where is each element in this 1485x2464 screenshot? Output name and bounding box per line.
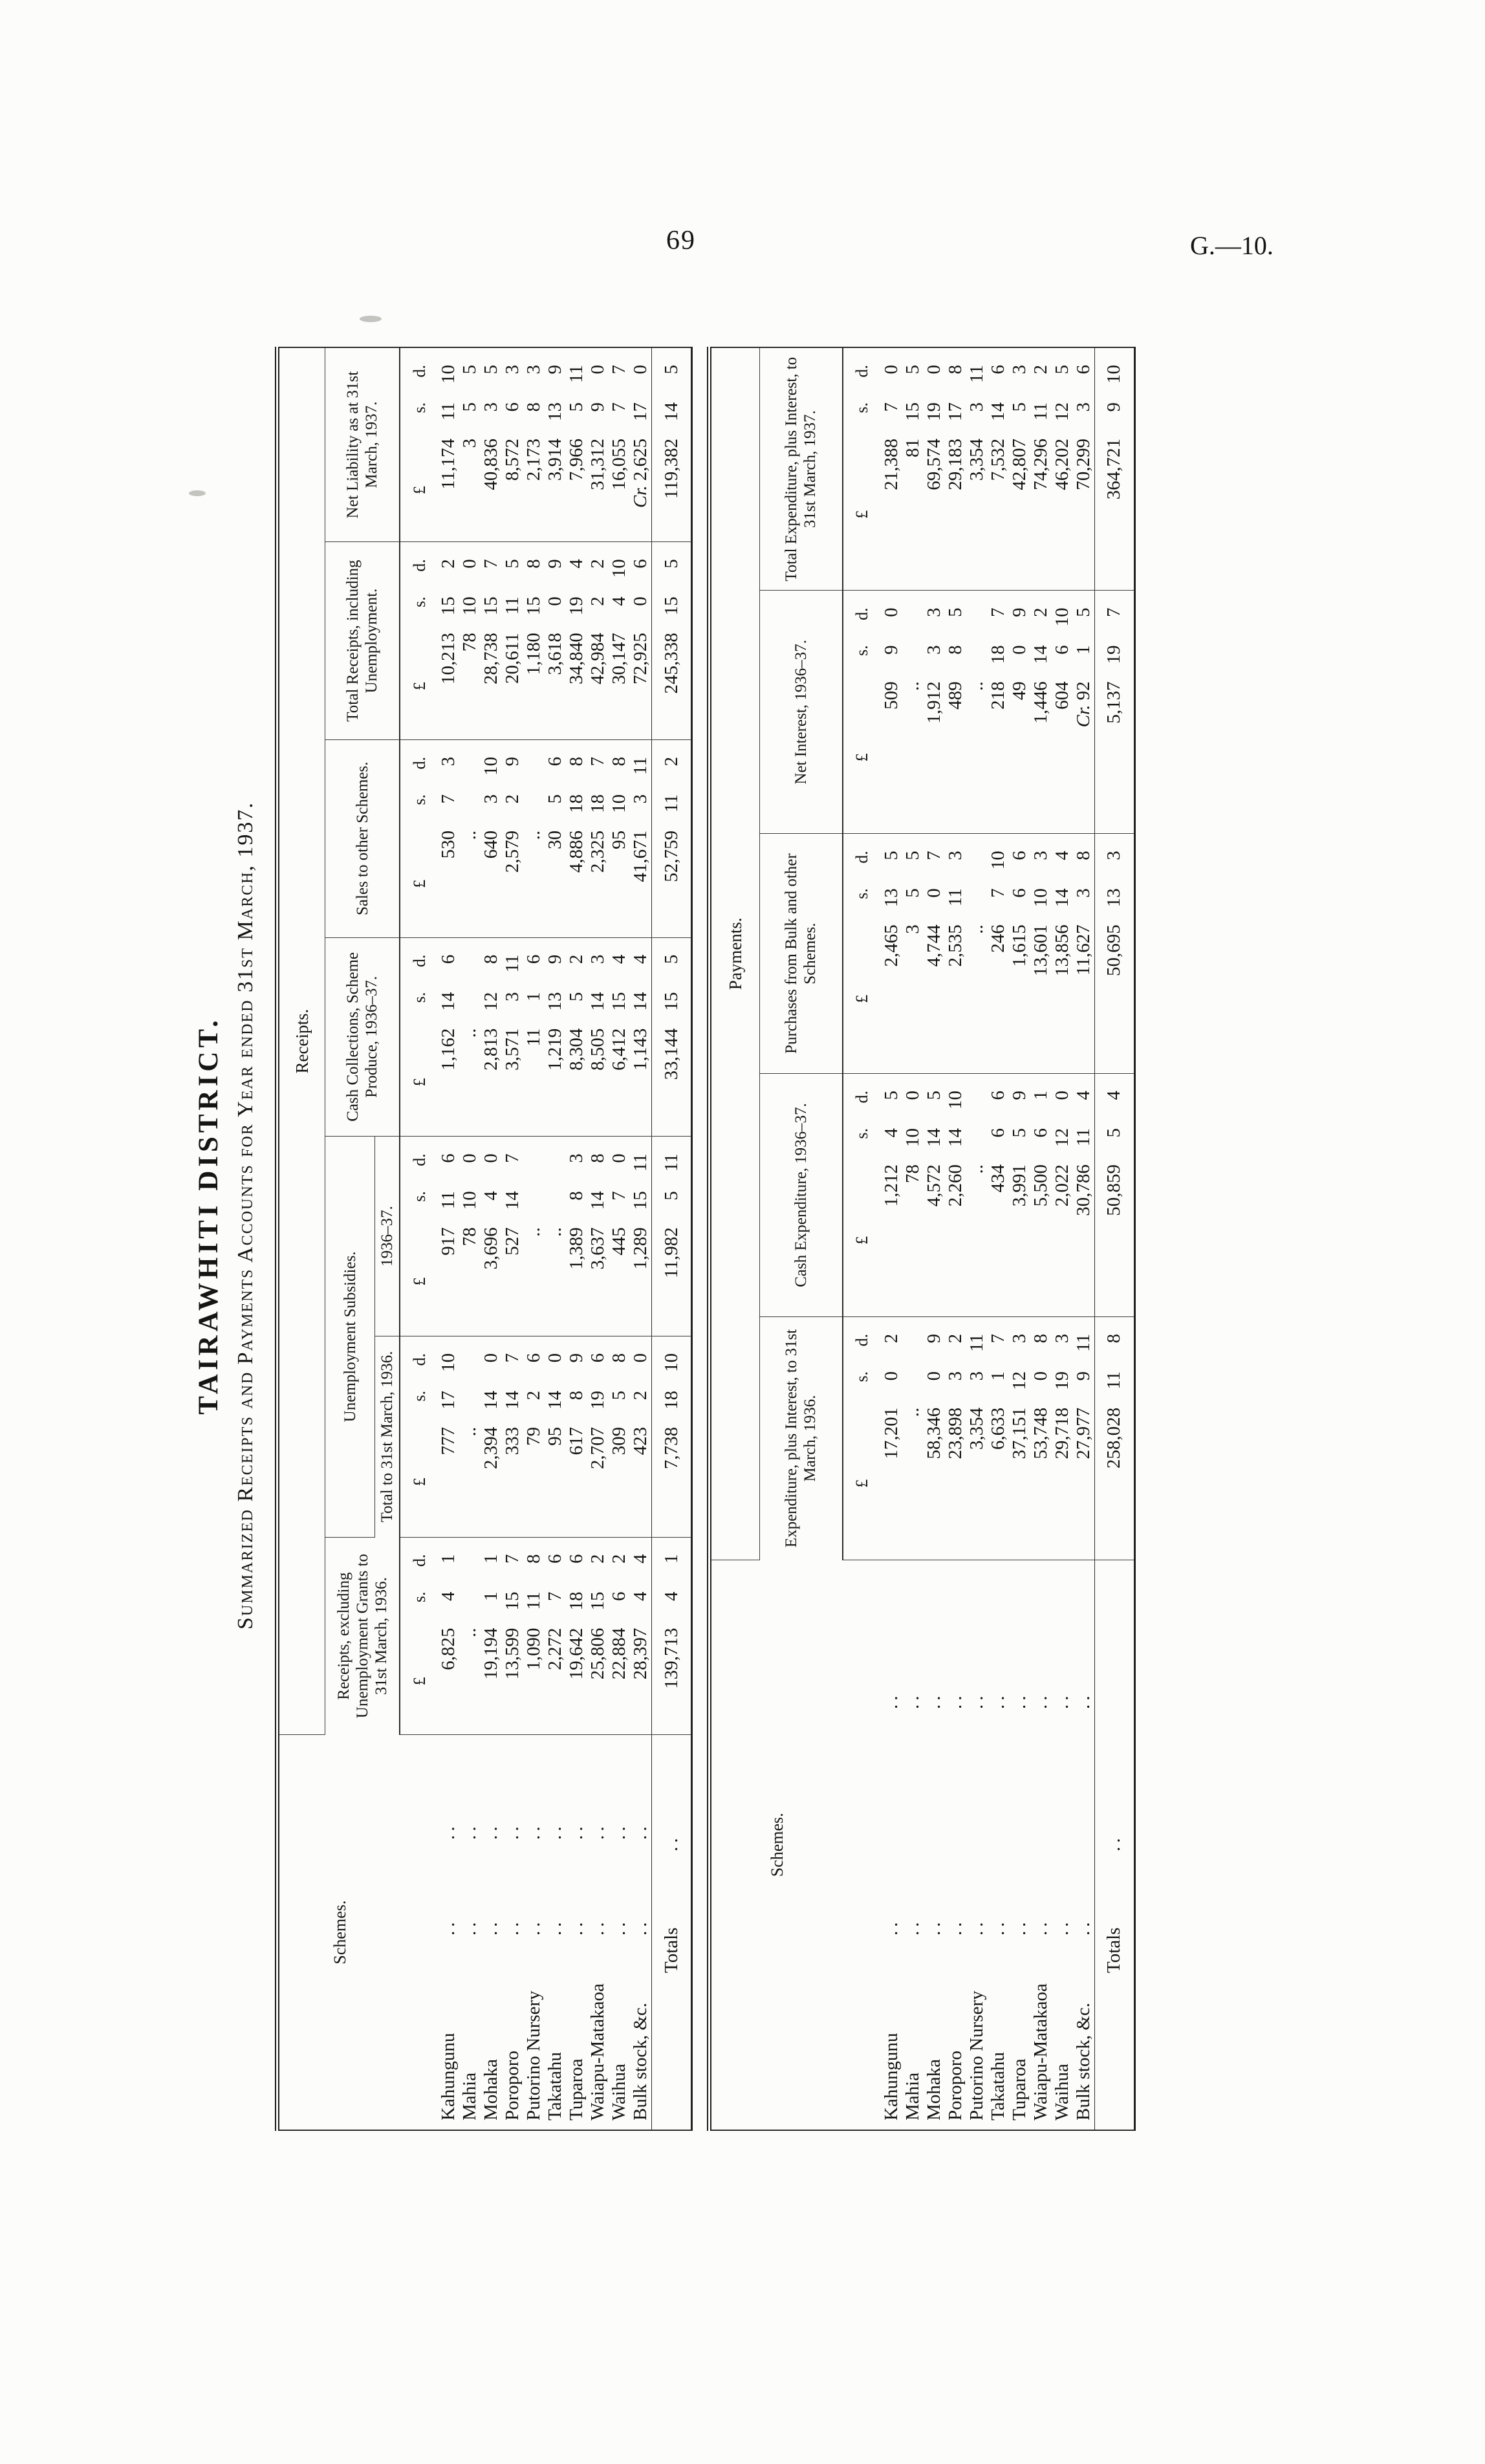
money-cell: 4909 bbox=[1009, 591, 1030, 834]
money-cell: 4,572145 bbox=[924, 1074, 945, 1317]
table-row: Mohaka....19,194112,3941403,696402,81312… bbox=[481, 347, 502, 2130]
column-header: Total Expenditure, plus Interest, to 31s… bbox=[760, 347, 843, 591]
scheme-cell: Takatahu.... bbox=[988, 1560, 1009, 2130]
money-cell: 70,29936 bbox=[1073, 347, 1095, 591]
scheme-cell: Waihua.... bbox=[1052, 1560, 1073, 2130]
money-cell: 25,806152 bbox=[587, 1537, 609, 1735]
table-row: Waihua....29,7181932,02212013,8561446046… bbox=[1052, 347, 1073, 2130]
money-cell: 7,532146 bbox=[988, 347, 1009, 591]
money-cell: .. bbox=[966, 1074, 988, 1317]
table-row: Mahia........78100....78100355 bbox=[459, 347, 481, 2130]
table-row: Takatahu....2,2727695140..1,21913930563,… bbox=[545, 347, 566, 2130]
scheme-cell: Putorino Nursery.... bbox=[523, 1735, 545, 2130]
money-cell: Cr. 9215 bbox=[1073, 591, 1095, 834]
money-cell: 5,50061 bbox=[1030, 1074, 1052, 1317]
money-cell: 1,219139 bbox=[545, 937, 566, 1137]
money-cell: 42320 bbox=[630, 1336, 652, 1537]
money-cell: 22,88462 bbox=[609, 1537, 630, 1735]
money-cell: 1,143144 bbox=[630, 937, 652, 1137]
money-cell: 1,91233 bbox=[924, 591, 945, 834]
money-cell: 13,599157 bbox=[502, 1537, 523, 1735]
money-cell: 1,2891511 bbox=[630, 1137, 652, 1336]
schemes-header: Schemes. bbox=[277, 1735, 400, 2130]
table-row: Mohaka....58,346094,5721454,744071,91233… bbox=[924, 347, 945, 2130]
money-unit: £s.d. bbox=[400, 1336, 438, 1537]
money-cell: 42,80753 bbox=[1009, 347, 1030, 591]
money-cell: 245,338155 bbox=[652, 542, 692, 740]
money-cell: 1,21245 bbox=[881, 1074, 902, 1317]
money-cell: 6,412154 bbox=[609, 937, 630, 1137]
table-row: Bulk stock, &c.....28,39744423201,289151… bbox=[630, 347, 652, 2130]
column-header: Expenditure, plus Interest, to 31st Marc… bbox=[760, 1316, 843, 1560]
money-cell: 16,05577 bbox=[609, 347, 630, 542]
money-cell: 7,7381810 bbox=[652, 1336, 692, 1537]
money-cell: 30,786114 bbox=[1073, 1074, 1095, 1317]
money-cell: 53,74808 bbox=[1030, 1316, 1052, 1560]
money-unit: £s.d. bbox=[843, 591, 881, 834]
money-cell: 11,982511 bbox=[652, 1137, 692, 1336]
money-cell: 95108 bbox=[609, 739, 630, 937]
money-cell: 3,571311 bbox=[502, 937, 523, 1137]
money-cell: 2,325187 bbox=[587, 739, 609, 937]
money-cell: 2,2601410 bbox=[945, 1074, 966, 1317]
table-row: Kahungunu....6,8254177717109171161,16214… bbox=[438, 347, 459, 2130]
money-cell: 3,354311 bbox=[966, 347, 988, 591]
money-cell: .. bbox=[523, 739, 545, 937]
money-cell: 355 bbox=[459, 347, 481, 542]
money-cell: 4,74407 bbox=[924, 834, 945, 1074]
scheme-cell bbox=[400, 1735, 438, 2130]
money-cell: 3056 bbox=[545, 739, 566, 937]
money-cell: 3,914139 bbox=[545, 347, 566, 542]
money-cell: 119,382145 bbox=[652, 347, 692, 542]
money-cell: 4,886188 bbox=[566, 739, 587, 937]
doc-ref: G.—10. bbox=[1190, 230, 1274, 261]
money-cell: 640310 bbox=[481, 739, 502, 937]
district-title: TAIRAWHITI DISTRICT. bbox=[193, 274, 224, 2157]
money-unit: £s.d. bbox=[400, 1137, 438, 1336]
section-label-receipts: Receipts. bbox=[277, 347, 325, 1735]
money-cell: 19,642186 bbox=[566, 1537, 587, 1735]
money-cell: 6,63317 bbox=[988, 1316, 1009, 1560]
money-cell: 78100 bbox=[902, 1074, 924, 1317]
money-cell: 29,183178 bbox=[945, 347, 966, 591]
money-cell: 2,535113 bbox=[945, 834, 966, 1074]
money-unit: £s.d. bbox=[400, 542, 438, 740]
money-cell: 21,38870 bbox=[881, 347, 902, 591]
money-cell: 604610 bbox=[1052, 591, 1073, 834]
table-row: Putorino Nursery....1,0901187926..1116..… bbox=[523, 347, 545, 2130]
payments-table: Schemes. Payments. Expenditure, plus Int… bbox=[707, 347, 1136, 2131]
money-cell: .. bbox=[459, 739, 481, 937]
table-row: Waihua....22,8846230958445706,4121549510… bbox=[609, 347, 630, 2130]
money-cell: 333147 bbox=[502, 1336, 523, 1537]
money-cell: 74,296112 bbox=[1030, 347, 1052, 591]
money-cell: 40,83635 bbox=[481, 347, 502, 542]
money-cell: 50990 bbox=[881, 591, 902, 834]
money-cell: 61789 bbox=[566, 1336, 587, 1537]
money-cell: .. bbox=[966, 834, 988, 1074]
money-cell: 78100 bbox=[459, 542, 481, 740]
money-cell: 1,180158 bbox=[523, 542, 545, 740]
money-cell: 58,34609 bbox=[924, 1316, 945, 1560]
money-cell: 1,162146 bbox=[438, 937, 459, 1137]
table-row: Tuparoa....19,642186617891,389838,304524… bbox=[566, 347, 587, 2130]
money-cell: 95140 bbox=[545, 1336, 566, 1537]
money-cell: 7,966511 bbox=[566, 347, 587, 542]
money-cell: .. bbox=[902, 1316, 924, 1560]
table-row: Kahungunu....17,201021,212452,4651355099… bbox=[881, 347, 902, 2130]
money-cell: 1,090118 bbox=[523, 1537, 545, 1735]
money-cell: 30,147410 bbox=[609, 542, 630, 740]
money-cell: 139,71341 bbox=[652, 1537, 692, 1735]
scheme-cell: Totals.... bbox=[652, 1735, 692, 2130]
scheme-cell: Bulk stock, &c..... bbox=[630, 1735, 652, 2130]
schemes-header: Schemes. bbox=[710, 1560, 843, 2130]
money-cell: 31,31290 bbox=[587, 347, 609, 542]
money-unit: £s.d. bbox=[400, 739, 438, 937]
money-cell: 6,82541 bbox=[438, 1537, 459, 1735]
money-cell: 33,144155 bbox=[652, 937, 692, 1137]
scheme-cell: Waiapu-Matakaoa.... bbox=[1030, 1560, 1052, 2130]
money-cell: 50,85954 bbox=[1094, 1074, 1134, 1317]
money-cell: 3,99159 bbox=[1009, 1074, 1030, 1317]
money-cell: 43466 bbox=[988, 1074, 1009, 1317]
money-cell: .. bbox=[459, 1336, 481, 1537]
money-cell: 1,446142 bbox=[1030, 591, 1052, 834]
table-row: Mahia......78100355..81155 bbox=[902, 347, 924, 2130]
money-unit: £s.d. bbox=[400, 937, 438, 1137]
money-unit-row: £s.d.£s.d.£s.d.£s.d.£s.d. bbox=[843, 347, 881, 2130]
totals-row: Totals....258,02811850,8595450,6951335,1… bbox=[1094, 347, 1134, 2130]
scheme-cell: Mohaka.... bbox=[481, 1735, 502, 2130]
money-cell: 258,028118 bbox=[1094, 1316, 1134, 1560]
money-cell: 2,707196 bbox=[587, 1336, 609, 1537]
money-cell: 1,61566 bbox=[1009, 834, 1030, 1074]
money-cell: 364,721910 bbox=[1094, 347, 1134, 591]
money-cell: 2,27276 bbox=[545, 1537, 566, 1735]
table-row: Poroporo....13,5991573331475271473,57131… bbox=[502, 347, 523, 2130]
money-cell: 17,20102 bbox=[881, 1316, 902, 1560]
totals-row: Totals....139,713417,738181011,98251133,… bbox=[652, 347, 692, 2130]
money-cell: 50,695133 bbox=[1094, 834, 1134, 1074]
scheme-cell: Totals.... bbox=[1094, 1560, 1134, 2130]
section-label-payments: Payments. bbox=[710, 347, 760, 1560]
column-subheader: 1936–37. bbox=[375, 1137, 400, 1336]
money-cell: .. bbox=[459, 1537, 481, 1735]
money-cell: 11,62738 bbox=[1073, 834, 1095, 1074]
money-cell: .. bbox=[966, 591, 988, 834]
money-cell: 44570 bbox=[609, 1137, 630, 1336]
money-cell: 19,19411 bbox=[481, 1537, 502, 1735]
money-unit: £s.d. bbox=[843, 1316, 881, 1560]
money-cell: 41,671311 bbox=[630, 739, 652, 937]
money-cell: 2,57929 bbox=[502, 739, 523, 937]
money-cell: 5,137197 bbox=[1094, 591, 1134, 834]
money-cell: 42,98422 bbox=[587, 542, 609, 740]
scheme-cell: Kahungunu.... bbox=[881, 1560, 902, 2130]
money-cell: 2,17383 bbox=[523, 347, 545, 542]
money-cell: 10,213152 bbox=[438, 542, 459, 740]
money-cell: 11,1741110 bbox=[438, 347, 459, 542]
money-unit: £s.d. bbox=[843, 1074, 881, 1317]
scheme-cell: Mohaka.... bbox=[924, 1560, 945, 2130]
money-cell: Cr. 2,625170 bbox=[630, 347, 652, 542]
table-subtitle: Summarized Receipts and Payments Account… bbox=[233, 274, 258, 2157]
money-cell: 34,840194 bbox=[566, 542, 587, 740]
money-cell: 13,856144 bbox=[1052, 834, 1073, 1074]
money-cell: .. bbox=[459, 937, 481, 1137]
money-cell: 218187 bbox=[988, 591, 1009, 834]
column-header: Cash Expenditure, 1936–37. bbox=[760, 1074, 843, 1317]
table-row: Putorino Nursery....3,354311......3,3543… bbox=[966, 347, 988, 2130]
money-cell: .. bbox=[523, 1137, 545, 1336]
money-cell: 20,611115 bbox=[502, 542, 523, 740]
column-group-header: Unemployment Subsidies. bbox=[325, 1137, 375, 1537]
column-header: Total Receipts, including Unemployment. bbox=[325, 542, 400, 740]
scheme-cell: Putorino Nursery.... bbox=[966, 1560, 988, 2130]
money-cell: .. bbox=[545, 1137, 566, 1336]
scheme-cell bbox=[843, 1560, 881, 2130]
money-cell: .. bbox=[902, 591, 924, 834]
rotated-sheet: TAIRAWHITI DISTRICT. Summarized Receipts… bbox=[150, 274, 1228, 2157]
table-row: Tuparoa....37,1511233,991591,61566490942… bbox=[1009, 347, 1030, 2130]
money-cell: 8,505143 bbox=[587, 937, 609, 1137]
money-cell: 28,738157 bbox=[481, 542, 502, 740]
document-page: { "page": { "number": "69", "doc_ref": "… bbox=[0, 0, 1485, 2464]
scheme-cell: Waiapu-Matakaoa.... bbox=[587, 1735, 609, 2130]
money-cell: 52,759112 bbox=[652, 739, 692, 937]
money-cell: 2,394140 bbox=[481, 1336, 502, 1537]
column-header: Purchases from Bulk and other Schemes. bbox=[760, 834, 843, 1074]
table-row: Takatahu....6,63317434662467102181877,53… bbox=[988, 347, 1009, 2130]
money-cell: 37,151123 bbox=[1009, 1316, 1030, 1560]
money-unit: £s.d. bbox=[843, 347, 881, 591]
money-cell: 78100 bbox=[459, 1137, 481, 1336]
money-cell: 13,601103 bbox=[1030, 834, 1052, 1074]
scheme-cell: Tuparoa.... bbox=[1009, 1560, 1030, 2130]
scheme-cell: Poroporo.... bbox=[502, 1735, 523, 2130]
money-unit: £s.d. bbox=[400, 1537, 438, 1735]
money-cell: 46,202125 bbox=[1052, 347, 1073, 591]
scheme-cell: Mahia.... bbox=[459, 1735, 481, 2130]
scheme-cell: Waihua.... bbox=[609, 1735, 630, 2130]
column-subheader: Total to 31st March, 1936. bbox=[375, 1336, 400, 1537]
table-row: Poroporo....23,898322,26014102,535113489… bbox=[945, 347, 966, 2130]
column-header: Receipts, excluding Unemployment Grants … bbox=[325, 1537, 400, 1735]
money-cell: 23,89832 bbox=[945, 1316, 966, 1560]
money-cell: 917116 bbox=[438, 1137, 459, 1336]
column-header: Net Liability as at 31st March, 1937. bbox=[325, 347, 400, 542]
table-row: Waiapu-Matakaoa....53,748085,5006113,601… bbox=[1030, 347, 1052, 2130]
money-cell: 527147 bbox=[502, 1137, 523, 1336]
money-unit: £s.d. bbox=[400, 347, 438, 542]
money-cell: 7771710 bbox=[438, 1336, 459, 1537]
scheme-cell: Tuparoa.... bbox=[566, 1735, 587, 2130]
money-unit-row: £s.d.£s.d.£s.d.£s.d.£s.d.£s.d.£s.d. bbox=[400, 347, 438, 2130]
scheme-cell: Kahungunu.... bbox=[438, 1735, 459, 2130]
money-cell: 28,39744 bbox=[630, 1537, 652, 1735]
money-cell: 29,718193 bbox=[1052, 1316, 1073, 1560]
money-cell: 2,465135 bbox=[881, 834, 902, 1074]
scheme-cell: Takatahu.... bbox=[545, 1735, 566, 2130]
page-number: 69 bbox=[666, 225, 696, 256]
money-cell: 2,022120 bbox=[1052, 1074, 1073, 1317]
money-cell: 3,69640 bbox=[481, 1137, 502, 1336]
money-cell: 72,92506 bbox=[630, 542, 652, 740]
money-cell: 3,354311 bbox=[966, 1316, 988, 1560]
money-cell: 8,30452 bbox=[566, 937, 587, 1137]
money-cell: 1116 bbox=[523, 937, 545, 1137]
scheme-cell: Mahia.... bbox=[902, 1560, 924, 2130]
money-cell: 30958 bbox=[609, 1336, 630, 1537]
column-header: Net Interest, 1936–37. bbox=[760, 591, 843, 834]
table-row: Bulk stock, &c.....27,97791130,78611411,… bbox=[1073, 347, 1095, 2130]
money-cell: 81155 bbox=[902, 347, 924, 591]
column-header: Cash Collections, Scheme Produce, 1936–3… bbox=[325, 937, 400, 1137]
receipts-table: Schemes. Receipts. Receipts, excluding U… bbox=[275, 347, 693, 2131]
money-cell: 48985 bbox=[945, 591, 966, 834]
column-header: Sales to other Schemes. bbox=[325, 739, 400, 937]
money-cell: 53073 bbox=[438, 739, 459, 937]
money-cell: 3,61809 bbox=[545, 542, 566, 740]
money-cell: 2,813128 bbox=[481, 937, 502, 1137]
scheme-cell: Poroporo.... bbox=[945, 1560, 966, 2130]
money-cell: 8,57263 bbox=[502, 347, 523, 542]
money-cell: 3,637148 bbox=[587, 1137, 609, 1336]
money-cell: 27,977911 bbox=[1073, 1316, 1095, 1560]
money-unit: £s.d. bbox=[843, 834, 881, 1074]
money-cell: 355 bbox=[902, 834, 924, 1074]
money-cell: 246710 bbox=[988, 834, 1009, 1074]
money-cell: 69,574190 bbox=[924, 347, 945, 591]
money-cell: 7926 bbox=[523, 1336, 545, 1537]
money-cell: 1,38983 bbox=[566, 1137, 587, 1336]
scheme-cell: Bulk stock, &c..... bbox=[1073, 1560, 1095, 2130]
table-row: Waiapu-Matakaoa....25,8061522,7071963,63… bbox=[587, 347, 609, 2130]
